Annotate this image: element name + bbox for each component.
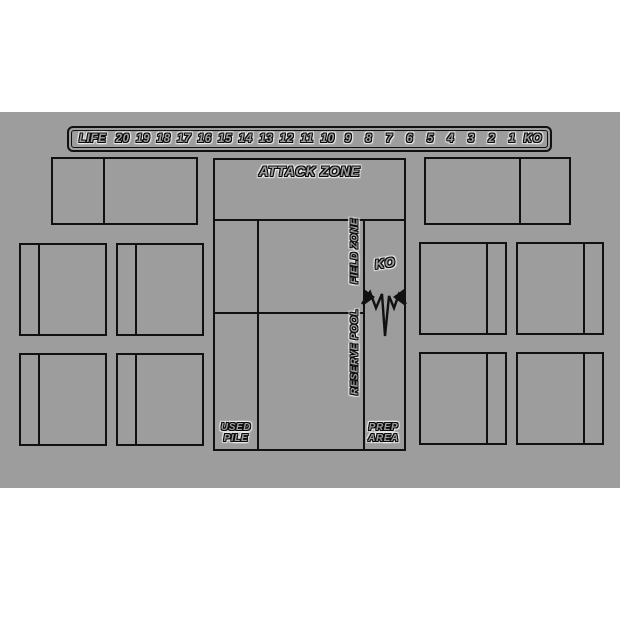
card-slot-divider xyxy=(583,354,585,443)
life-cell[interactable]: 12 xyxy=(276,133,297,145)
life-track: LIFE 2019181716151413121110987654321KO xyxy=(67,126,552,152)
life-cell[interactable]: 6 xyxy=(400,133,421,145)
card-slot-divider xyxy=(486,244,488,333)
life-cell[interactable]: 1 xyxy=(502,133,523,145)
life-cell[interactable]: 14 xyxy=(235,133,256,145)
attack-zone[interactable]: ATTACK ZONE xyxy=(215,164,404,179)
attack-zone-divider xyxy=(215,219,404,221)
card-slot-left-bottom-2[interactable] xyxy=(116,353,204,446)
prep-area[interactable]: PREP AREA xyxy=(363,422,404,444)
card-slot-divider xyxy=(519,159,521,223)
life-cell[interactable]: 2 xyxy=(482,133,503,145)
card-slot-divider xyxy=(486,354,488,443)
card-slot-right-mid-1[interactable] xyxy=(419,242,507,335)
life-cell[interactable]: 3 xyxy=(461,133,482,145)
life-cell[interactable]: 7 xyxy=(379,133,400,145)
card-slot-divider xyxy=(135,355,137,444)
life-cell[interactable]: 17 xyxy=(174,133,195,145)
life-cell[interactable]: 16 xyxy=(194,133,215,145)
life-cell[interactable]: 11 xyxy=(297,133,318,145)
card-slot-left-mid-1[interactable] xyxy=(19,243,107,336)
card-slot-divider xyxy=(38,355,40,444)
card-slot-divider xyxy=(38,245,40,334)
life-track-inner: LIFE 2019181716151413121110987654321KO xyxy=(71,130,548,148)
card-slot-divider xyxy=(583,244,585,333)
life-cell[interactable]: 10 xyxy=(317,133,338,145)
life-cell[interactable]: 5 xyxy=(420,133,441,145)
used-pile-column-divider xyxy=(257,219,259,449)
life-cell[interactable]: 19 xyxy=(133,133,154,145)
life-cell[interactable]: KO xyxy=(523,133,544,145)
field-zone[interactable]: FIELD ZONE xyxy=(350,218,361,283)
card-slot-top-right-double[interactable] xyxy=(424,157,571,225)
field-reserve-divider xyxy=(215,312,365,314)
life-cell[interactable]: 4 xyxy=(441,133,462,145)
playmat-page: LIFE 2019181716151413121110987654321KO xyxy=(0,0,620,620)
card-slot-right-bottom-2[interactable] xyxy=(516,352,604,445)
used-pile[interactable]: USED PILE xyxy=(215,422,257,444)
ko-zone[interactable]: KO xyxy=(374,254,397,272)
life-cell[interactable]: 18 xyxy=(153,133,174,145)
card-slot-divider xyxy=(135,245,137,334)
life-track-label: LIFE xyxy=(72,133,112,145)
life-cells: 2019181716151413121110987654321KO xyxy=(112,131,547,147)
life-cell[interactable]: 20 xyxy=(112,133,133,145)
card-slot-top-left-double[interactable] xyxy=(51,157,198,225)
life-cell[interactable]: 13 xyxy=(256,133,277,145)
life-cell[interactable]: 15 xyxy=(215,133,236,145)
card-slot-right-mid-2[interactable] xyxy=(516,242,604,335)
life-cell[interactable]: 8 xyxy=(359,133,380,145)
life-cell[interactable]: 9 xyxy=(338,133,359,145)
burst-crack-icon xyxy=(358,284,410,344)
card-slot-divider xyxy=(103,159,105,223)
card-slot-left-bottom-1[interactable] xyxy=(19,353,107,446)
center-panel: ATTACK ZONE FIELD ZONE RESERVE POOL KO U… xyxy=(213,158,406,451)
card-slot-right-bottom-1[interactable] xyxy=(419,352,507,445)
card-slot-left-mid-2[interactable] xyxy=(116,243,204,336)
playmat: LIFE 2019181716151413121110987654321KO xyxy=(0,112,620,488)
